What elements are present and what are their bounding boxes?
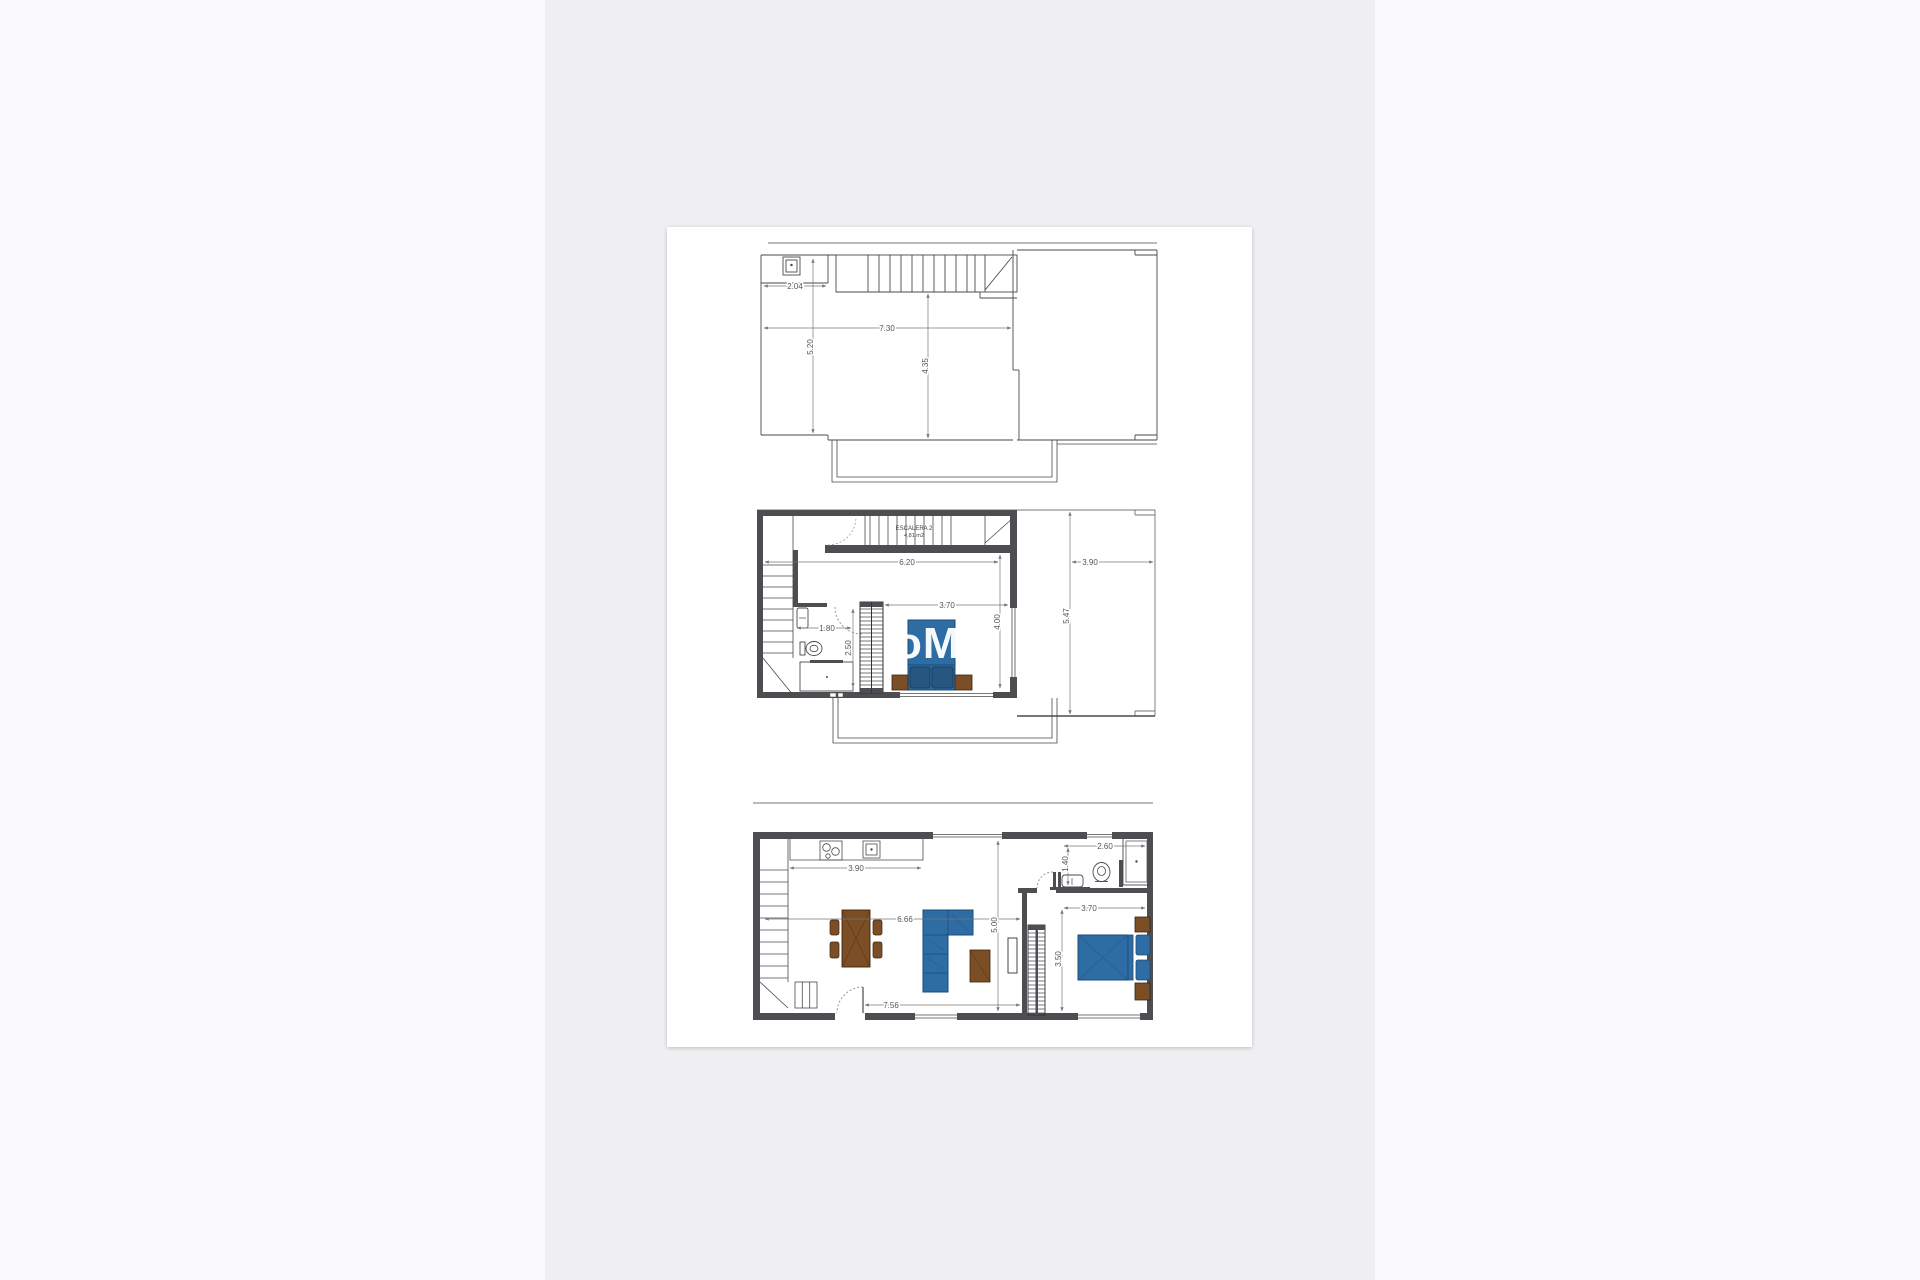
dim-label: 5.00	[990, 917, 999, 933]
floorplan-drawing: 2.04 7.30 5.20 4.35	[667, 227, 1252, 1047]
ground-floor-plan: 3.90 6.66 7.56 5.00 2.60 1.40 3.70 3.50	[753, 803, 1153, 1020]
dim-label: 2.50	[844, 640, 853, 656]
door-arc	[1037, 872, 1053, 888]
upper-stairs	[1028, 925, 1045, 1015]
pillow	[1136, 960, 1150, 980]
first-wardrobe	[860, 602, 883, 693]
pillow	[932, 667, 953, 688]
nightstand	[1135, 917, 1150, 932]
door-arc	[828, 517, 856, 545]
dim-label: 3.50	[1054, 951, 1063, 967]
dim-label: 1.80	[819, 624, 835, 633]
stair-direction-line	[760, 982, 788, 1008]
chair	[873, 920, 882, 935]
nightstand	[955, 675, 972, 690]
dim-label: 3.70	[1081, 904, 1097, 913]
dim-label: 7.30	[879, 324, 895, 333]
floorplan-image: 2.04 7.30 5.20 4.35	[667, 227, 1252, 1047]
dim-label: 1.40	[1061, 856, 1070, 872]
sofa	[923, 910, 973, 992]
dim-label: 7.56	[883, 1001, 899, 1010]
cooktop	[820, 841, 842, 860]
stair-area-label: 4,81 m2	[904, 533, 924, 539]
dim-label: 3.90	[1082, 558, 1098, 567]
dining-table	[830, 910, 882, 967]
door-arc	[835, 607, 862, 634]
kitchen-sink	[863, 841, 880, 858]
chair	[873, 942, 882, 958]
stair-direction-line	[985, 257, 1012, 290]
first-terrace	[1017, 510, 1155, 716]
ground-stairs	[760, 839, 817, 1008]
ground-kitchen	[790, 839, 923, 860]
dim-label: 3.90	[848, 864, 864, 873]
dim-label: 5.47	[1062, 608, 1071, 624]
dim-label: 3.70	[939, 601, 955, 610]
stair-direction-line	[763, 658, 793, 695]
nightstand	[892, 675, 908, 690]
dim-label: 2.04	[787, 282, 803, 291]
roof-stairs	[836, 255, 1017, 298]
dim-label: 4.35	[921, 358, 930, 374]
stair-direction-line	[985, 517, 1014, 543]
first-bed	[908, 620, 955, 690]
entry-door	[837, 987, 863, 1013]
pillow	[1136, 935, 1150, 955]
dim-label: 6.66	[897, 915, 913, 924]
tv-unit	[1008, 938, 1017, 973]
toilet	[800, 642, 822, 656]
pillow	[910, 667, 930, 688]
dim-label: 2.60	[1097, 842, 1113, 851]
bathtub	[800, 660, 853, 691]
shower	[1123, 838, 1150, 885]
first-floor-plan: ESCALERA 2 4,81 m2	[757, 510, 1155, 743]
roof-balcony	[832, 440, 1057, 482]
chair	[830, 942, 839, 958]
roof-sink	[783, 257, 800, 275]
nightstand	[1135, 983, 1150, 1000]
roof-plan: 2.04 7.30 5.20 4.35	[761, 243, 1157, 482]
dim-label: 6.20	[899, 558, 915, 567]
bathroom-sink	[1062, 875, 1083, 887]
roof-terrace	[1013, 250, 1157, 444]
first-left-stairs	[763, 516, 793, 695]
ground-bed	[1078, 935, 1150, 980]
dim-label: 4.00	[993, 614, 1002, 630]
stair-label: ESCALERA 2	[896, 526, 933, 532]
first-balcony	[833, 698, 1057, 743]
toilet	[1093, 863, 1110, 882]
door-arc	[837, 987, 863, 1013]
dim-label: 5.20	[806, 339, 815, 355]
chair	[830, 920, 839, 935]
